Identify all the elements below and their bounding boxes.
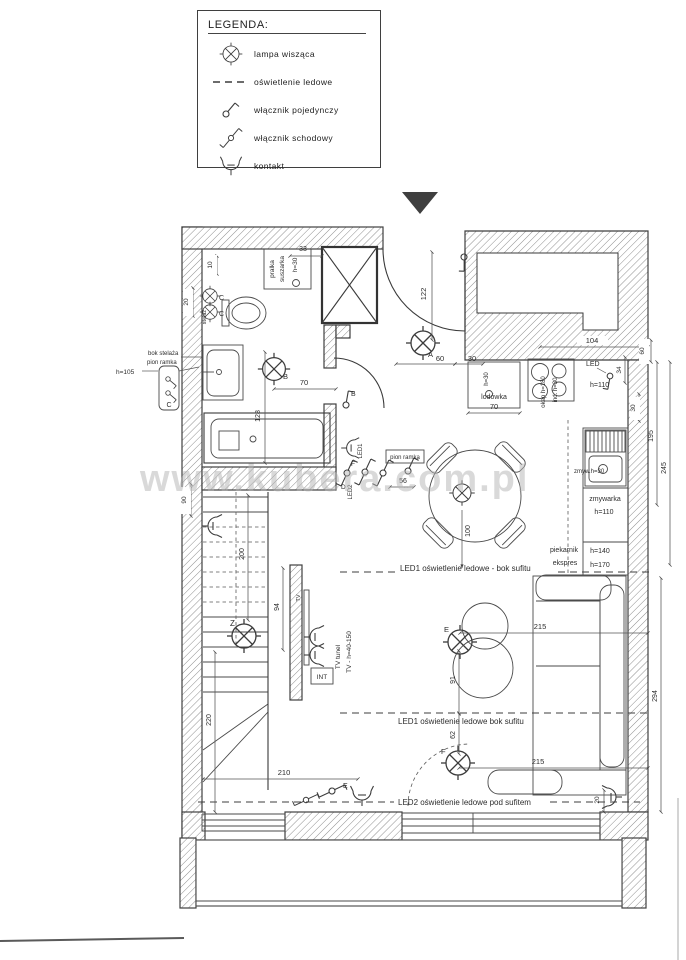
stair-switch-icon (208, 126, 254, 150)
ventilation-shaft (322, 247, 377, 323)
switch-label-f: F (351, 461, 355, 468)
lamp-label-f: F (441, 747, 446, 756)
label-led-switch-h: h=110 (590, 382, 609, 389)
legend-item-label: lampa wisząca (254, 49, 315, 59)
dim-30: 30 (468, 354, 476, 363)
chair (424, 440, 459, 475)
switch-label-c: C (166, 402, 171, 409)
lamp-label-b: B (283, 372, 288, 381)
window-left (202, 814, 285, 831)
power-socket-right-wall (602, 786, 622, 809)
socket-icon (208, 154, 254, 178)
wall-bottom-mid (285, 812, 402, 840)
bathtub (204, 413, 330, 463)
label-led-switch: LED (586, 361, 600, 368)
lamp-label-z: Z (230, 619, 235, 628)
legend-box: LEGENDA: lampa wisząca oświetlenie ledow… (197, 10, 381, 168)
wall-left (182, 227, 202, 845)
label-tv-tunel: TV tunel (335, 644, 342, 669)
dim-60: 60 (436, 354, 444, 363)
dim-200: 200 (239, 548, 246, 560)
lamp-label-c2: C (219, 311, 224, 318)
dining-table (420, 439, 527, 550)
lamp-label-a: A (428, 350, 433, 359)
single-switch-icon (208, 99, 254, 121)
balcony-wall-right (622, 838, 646, 908)
label-okap: okap h=180 (541, 376, 547, 408)
lamp-label-e: E (444, 625, 449, 634)
dim-33: 33 (299, 246, 307, 253)
dim-10: 10 (207, 261, 214, 269)
dim-34: 34 (616, 366, 623, 374)
legend-item-stair-switch: włącznik schodowy (208, 127, 380, 149)
toilet (222, 297, 266, 329)
dim-30-wall: 30 (630, 404, 637, 412)
label-pion-ramka-bathroom: pion ramka (147, 360, 177, 366)
chair (492, 515, 527, 550)
dim-100: 100 (465, 525, 472, 537)
cooktop (528, 359, 574, 401)
label-lodowka: lodówka (481, 394, 507, 401)
dim-215-bottom: 215 (532, 757, 545, 766)
led-strip-lines (198, 572, 650, 802)
chair (420, 515, 455, 550)
dim-245: 245 (661, 462, 668, 474)
balcony-door-window (402, 813, 600, 833)
dim-60-wall: 60 (639, 347, 646, 355)
legend-item-socket: kontakt (208, 155, 380, 177)
pendant-lamp-icon (208, 42, 254, 66)
legend-item-pendant-lamp: lampa wisząca (208, 43, 380, 65)
legend-item-label: włącznik pojedynczy (254, 105, 339, 115)
dim-128: 128 (255, 410, 262, 422)
balcony (196, 840, 622, 906)
pouf (453, 638, 513, 698)
label-pion-ramka-hall: pion ramka (390, 455, 420, 461)
label-tv-h: TV - h=40-150 (346, 631, 353, 673)
balcony-wall-left (180, 838, 196, 908)
label-suszarka: suszarka (279, 256, 286, 282)
wall-right (628, 360, 648, 812)
wall-top (182, 227, 383, 249)
dim-56: 56 (399, 478, 407, 485)
label-ekspres-h: h=170 (590, 562, 610, 569)
label-zmywarka: zmywarka (589, 496, 621, 503)
dim-70-bath: 70 (300, 378, 308, 387)
pouf (462, 603, 508, 649)
dim-195: 195 (648, 430, 655, 442)
label-pralka: pralka (269, 260, 276, 278)
chair (492, 439, 527, 474)
stair-switch-bottom-2 (291, 786, 321, 814)
label-led1-vertical: LED1 (358, 443, 364, 459)
label-bok-stelaza: bok stelaża (148, 351, 179, 357)
bathroom-wall-upper (324, 325, 336, 368)
power-socket-stairs (202, 515, 222, 538)
led1-line1-text: LED1 oświetlenie ledowe - bok sufitu (400, 564, 531, 573)
dim-220: 220 (206, 714, 213, 726)
led1-line2-text: LED1 oświetlenie ledowe bok sufitu (398, 717, 524, 726)
switch-label-e: E (343, 783, 348, 790)
legend-item-label: kontakt (254, 161, 284, 171)
dim-294: 294 (652, 690, 659, 702)
legend-item-label: oświetlenie ledowe (254, 77, 333, 87)
legend-item-led: oświetlenie ledowe (208, 71, 380, 93)
label-pralka-h: h=30 (292, 257, 299, 272)
dim-20-wall: 20 (594, 796, 601, 804)
dim-20: 20 (183, 298, 190, 306)
led-strip-icon (208, 78, 254, 86)
dim-91: 91 (450, 676, 457, 684)
wall-bottom-right (600, 812, 648, 840)
legend-item-label: włącznik schodowy (254, 133, 333, 143)
lamp-label-c1: C (219, 295, 224, 302)
legend-item-single-switch: włącznik pojedynczy (208, 99, 380, 121)
label-led2-vertical: LED2 (348, 484, 354, 500)
label-stelaz: stelaż (202, 310, 208, 325)
kitchen-sink (585, 430, 626, 486)
dim-122: 122 (419, 288, 428, 301)
dim-215-top: 215 (534, 622, 547, 631)
label-piekarnik-h: h=140 (590, 548, 610, 555)
power-socket-bottom (351, 786, 374, 806)
label-lodowka-socket-h: h=30 (484, 372, 490, 386)
tv-screen (304, 590, 309, 665)
sofa (488, 575, 626, 795)
scanned-floor-plan-page: LEGENDA: lampa wisząca oświetlenie ledow… (0, 0, 686, 960)
label-int: INT (317, 674, 328, 681)
label-ekspres: ekspres (553, 560, 578, 567)
switch-label-d: D (341, 484, 346, 491)
stairs (203, 492, 268, 790)
label-piekarnik: piekarnik (550, 547, 579, 554)
ceiling-lamp-f (441, 746, 475, 780)
legend-title: LEGENDA: (208, 19, 366, 34)
label-zlew: zmyw.h=30 (574, 469, 605, 475)
scan-artifact-line (0, 938, 184, 941)
bathroom-wall-bottom (202, 467, 336, 490)
washbasin (203, 345, 243, 400)
power-socket-led1 (341, 438, 359, 459)
bathroom-wall-stub (336, 325, 350, 338)
dim-70-fridge: 70 (490, 402, 498, 411)
tv-wall (290, 565, 302, 700)
entrance-arrow-icon (402, 192, 438, 214)
dim-104: 104 (586, 336, 599, 345)
label-tv: TV (296, 594, 302, 601)
label-h105: h=105 (116, 369, 135, 376)
led2-line-text: LED2 oświetlenie ledowe pod sufitem (398, 798, 531, 807)
dim-62: 62 (450, 731, 457, 739)
switch-label-b: B (351, 391, 356, 398)
ceiling-lamp-table (449, 480, 475, 506)
label-zmywarka-h: h=110 (594, 509, 613, 516)
dim-94: 94 (274, 603, 281, 611)
dim-90: 90 (181, 496, 188, 504)
bathroom-door (334, 358, 384, 408)
dim-210: 210 (278, 768, 291, 777)
label-indukcja: ind. h=30 (553, 377, 559, 403)
